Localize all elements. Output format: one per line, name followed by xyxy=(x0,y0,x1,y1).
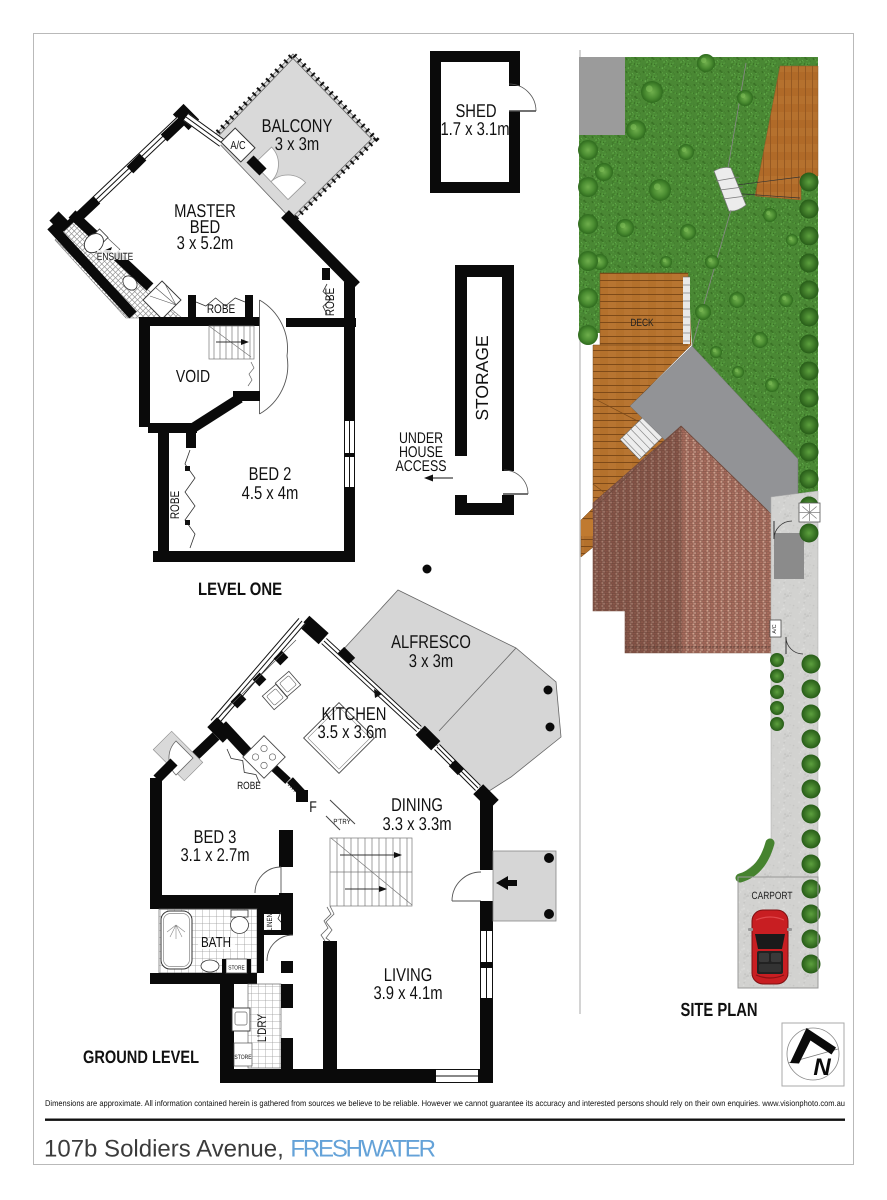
svg-text:N: N xyxy=(813,1054,831,1081)
svg-text:CARPORT: CARPORT xyxy=(752,890,793,902)
svg-text:3 x 5.2m: 3 x 5.2m xyxy=(177,232,234,253)
svg-text:ROBE: ROBE xyxy=(323,288,337,316)
svg-text:107b Soldiers Avenue, FRESHWAT: 107b Soldiers Avenue, FRESHWATER xyxy=(44,1136,436,1163)
svg-text:1.7 x 3.1m: 1.7 x 3.1m xyxy=(440,118,509,139)
svg-text:ENSUITE: ENSUITE xyxy=(97,251,133,263)
svg-text:DINING: DINING xyxy=(391,794,443,815)
svg-text:ROBE: ROBE xyxy=(237,780,261,792)
svg-text:L’DRY: L’DRY xyxy=(255,1013,269,1042)
svg-text:BED 2: BED 2 xyxy=(249,463,292,484)
svg-text:Dimensions are approximate. Al: Dimensions are approximate. All informat… xyxy=(45,1098,845,1108)
svg-text:GROUND LEVEL: GROUND LEVEL xyxy=(83,1047,199,1067)
svg-text:F: F xyxy=(309,799,317,816)
svg-text:3 x 3m: 3 x 3m xyxy=(275,133,319,154)
svg-text:3.9 x 4.1m: 3.9 x 4.1m xyxy=(373,982,442,1003)
svg-text:A/C: A/C xyxy=(772,624,778,633)
svg-text:3.3 x 3.3m: 3.3 x 3.3m xyxy=(382,813,451,834)
svg-text:ROBE: ROBE xyxy=(207,302,235,316)
svg-text:3 x 3m: 3 x 3m xyxy=(409,650,453,671)
svg-text:STORAGE: STORAGE xyxy=(472,335,492,420)
svg-text:VOID: VOID xyxy=(176,366,210,386)
svg-text:STORE: STORE xyxy=(234,1054,251,1061)
svg-text:DECK: DECK xyxy=(630,317,653,329)
svg-text:A/C: A/C xyxy=(230,140,245,152)
svg-text:P’TRY: P’TRY xyxy=(333,817,350,826)
svg-text:ACCESS: ACCESS xyxy=(396,458,447,475)
svg-text:LEVEL ONE: LEVEL ONE xyxy=(198,579,282,599)
svg-text:ALFRESCO: ALFRESCO xyxy=(391,631,471,652)
svg-text:STORE: STORE xyxy=(228,965,244,972)
svg-text:ROBE: ROBE xyxy=(168,491,182,519)
svg-text:4.5 x 4m: 4.5 x 4m xyxy=(242,482,299,503)
svg-text:3.1 x 2.7m: 3.1 x 2.7m xyxy=(180,844,249,865)
svg-text:LINEN: LINEN xyxy=(265,913,274,931)
svg-text:SITE PLAN: SITE PLAN xyxy=(681,1000,758,1021)
svg-text:3.5 x 3.6m: 3.5 x 3.6m xyxy=(317,721,386,742)
svg-text:BATH: BATH xyxy=(201,935,231,951)
